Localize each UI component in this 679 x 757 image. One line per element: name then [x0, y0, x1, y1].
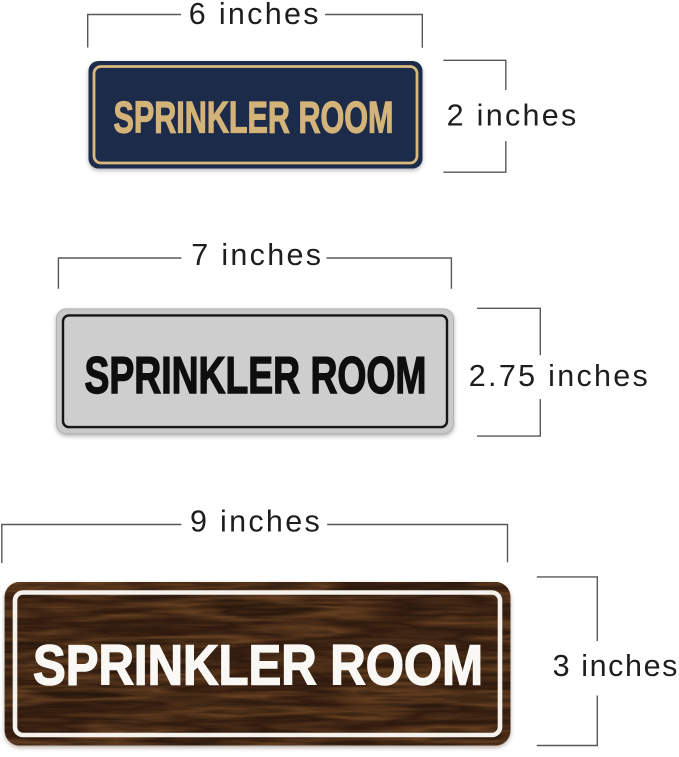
- svg-text:SPRINKLER ROOM: SPRINKLER ROOM: [85, 347, 427, 405]
- svg-text:3 inches: 3 inches: [553, 649, 679, 683]
- svg-text:6 inches: 6 inches: [189, 0, 321, 31]
- svg-text:7 inches: 7 inches: [191, 238, 323, 272]
- svg-text:2.75 inches: 2.75 inches: [469, 359, 650, 393]
- svg-text:2 inches: 2 inches: [447, 98, 579, 132]
- svg-text:SPRINKLER ROOM: SPRINKLER ROOM: [114, 93, 394, 142]
- svg-text:SPRINKLER ROOM: SPRINKLER ROOM: [33, 633, 483, 696]
- svg-text:9 inches: 9 inches: [190, 504, 322, 538]
